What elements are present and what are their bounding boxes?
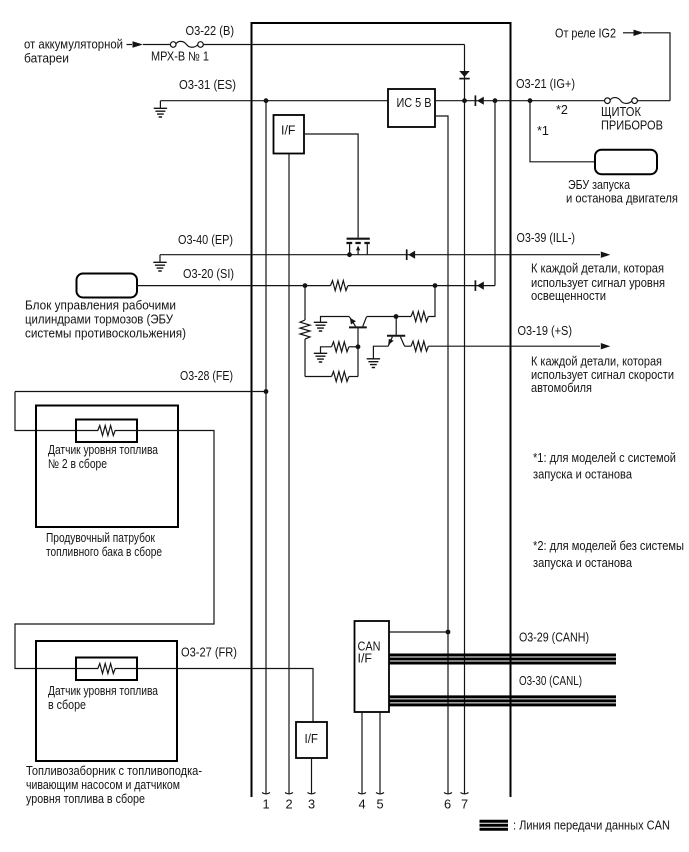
svg-text:цилиндрами тормозов (ЭБУ: цилиндрами тормозов (ЭБУ: [25, 313, 174, 327]
svg-text:топливного бака в сборе: топливного бака в сборе: [46, 545, 162, 559]
svg-text:Датчик уровня топлива: Датчик уровня топлива: [48, 443, 158, 457]
svg-text:О3-19 (+S): О3-19 (+S): [518, 324, 573, 338]
svg-text:5: 5: [376, 797, 383, 812]
svg-text:*2: *2: [556, 103, 568, 117]
svg-text:О3-22 (В): О3-22 (В): [186, 24, 235, 38]
svg-text:ПРИБОРОВ: ПРИБОРОВ: [601, 119, 663, 133]
svg-text:I/F: I/F: [358, 652, 373, 666]
svg-text:I/F: I/F: [281, 124, 296, 138]
svg-text:освещенности: освещенности: [531, 289, 606, 303]
svg-text:2: 2: [285, 797, 292, 812]
svg-text:Продувочный патрубок: Продувочный патрубок: [46, 531, 155, 545]
svg-text:и останова двигателя: и останова двигателя: [566, 192, 678, 206]
svg-text:О3-30 (CANL): О3-30 (CANL): [519, 674, 582, 688]
svg-text:4: 4: [358, 797, 365, 812]
svg-text:запуска и останова: запуска и останова: [533, 468, 632, 482]
svg-text:ЭБУ запуска: ЭБУ запуска: [568, 178, 630, 192]
svg-text:О3-40 (ЕР): О3-40 (ЕР): [178, 233, 233, 247]
svg-text:автомобиля: автомобиля: [531, 381, 592, 395]
svg-text:О3-28 (FE): О3-28 (FE): [180, 369, 233, 383]
svg-text:*1: для моделей с системой: *1: для моделей с системой: [533, 451, 676, 465]
svg-text:О3-21 (IG+): О3-21 (IG+): [516, 77, 575, 91]
svg-text:запуска и останова: запуска и останова: [533, 556, 632, 570]
svg-text:6: 6: [444, 797, 451, 812]
svg-text:О3-39 (ILL-): О3-39 (ILL-): [517, 231, 576, 245]
svg-text:I/F: I/F: [305, 732, 319, 746]
svg-text:О3-31 (ES): О3-31 (ES): [179, 78, 236, 92]
svg-text:1: 1: [262, 797, 269, 812]
svg-text:ИС 5 В: ИС 5 В: [397, 96, 432, 110]
svg-text:Топливозаборник с топливоподка: Топливозаборник с топливоподка-: [26, 764, 202, 778]
svg-text:Блок управления рабочими: Блок управления рабочими: [25, 299, 176, 313]
svg-text:МРХ-В № 1: МРХ-В № 1: [151, 50, 209, 64]
svg-text:О3-27 (FR): О3-27 (FR): [181, 646, 237, 660]
svg-text:От реле IG2: От реле IG2: [555, 27, 616, 41]
svg-text:О3-20 (SI): О3-20 (SI): [183, 267, 234, 281]
svg-text:ЩИТОК: ЩИТОК: [601, 105, 642, 119]
svg-text:системы противоскольжения): системы противоскольжения): [25, 327, 186, 341]
svg-text:№ 2 в сборе: № 2 в сборе: [48, 457, 107, 471]
svg-text:О3-29 (CANH): О3-29 (CANH): [519, 631, 589, 645]
svg-text:в сборе: в сборе: [48, 698, 86, 712]
svg-text:от аккумуляторной: от аккумуляторной: [24, 38, 123, 52]
svg-text:батареи: батареи: [24, 52, 69, 66]
svg-text:3: 3: [308, 797, 315, 812]
svg-text:К каждой детали, которая: К каждой детали, которая: [531, 262, 664, 276]
svg-text:чивающим насосом и датчиком: чивающим насосом и датчиком: [26, 778, 180, 792]
svg-text:Датчик уровня топлива: Датчик уровня топлива: [48, 684, 158, 698]
svg-text:К каждой детали, которая: К каждой детали, которая: [531, 355, 662, 369]
svg-text:7: 7: [461, 797, 468, 812]
svg-text:: Линия передачи данных CAN: : Линия передачи данных CAN: [513, 819, 670, 833]
svg-text:уровня топлива в сборе: уровня топлива в сборе: [26, 792, 145, 806]
svg-text:использует сигнал уровня: использует сигнал уровня: [531, 276, 665, 290]
svg-text:использует сигнал скорости: использует сигнал скорости: [531, 368, 674, 382]
svg-text:*2: для моделей без системы: *2: для моделей без системы: [533, 539, 684, 553]
svg-text:*1: *1: [537, 124, 549, 138]
